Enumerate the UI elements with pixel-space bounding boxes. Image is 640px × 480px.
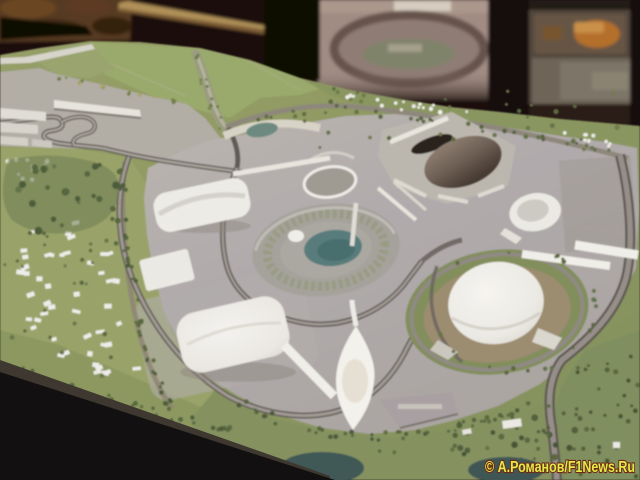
svg-text:© А.Романов/F1News.Ru: © А.Романов/F1News.Ru <box>485 459 635 476</box>
